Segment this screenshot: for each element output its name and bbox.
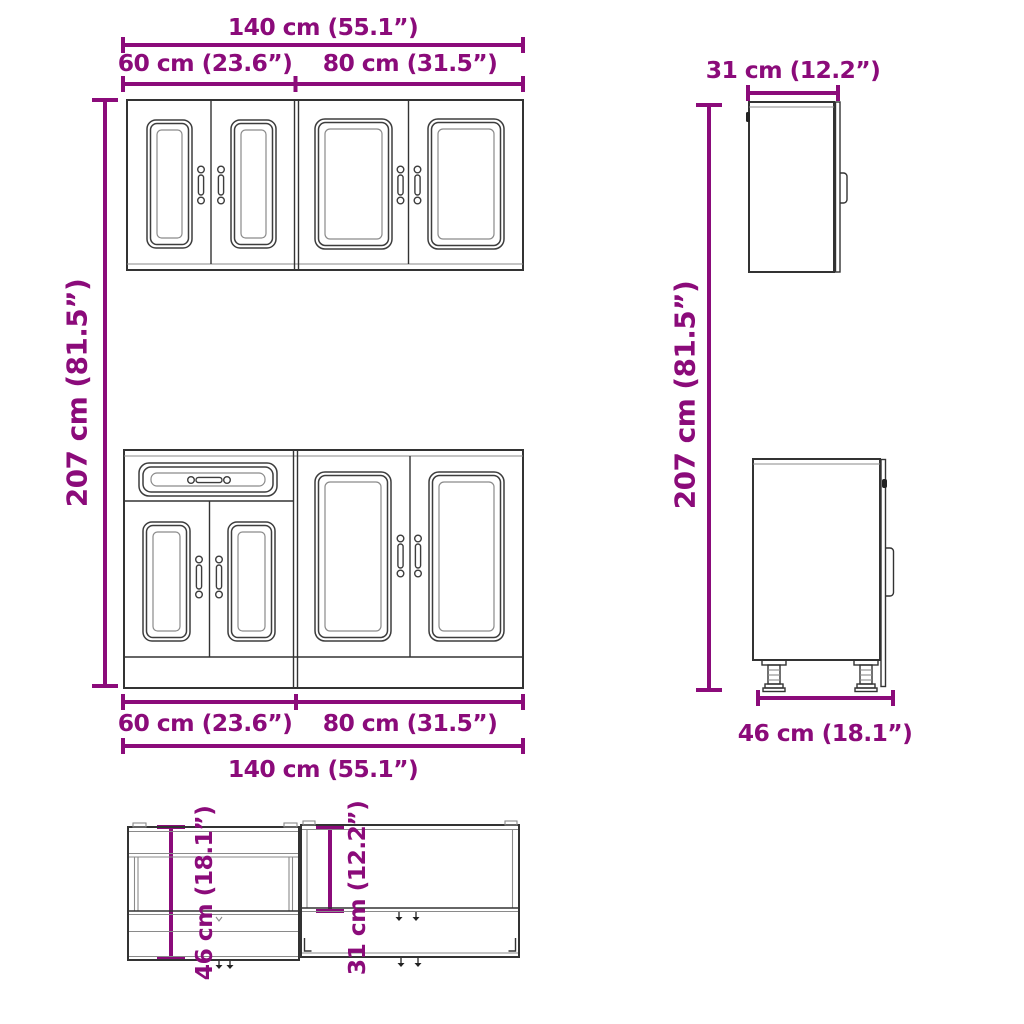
hinge-icon <box>746 112 750 122</box>
door-handle <box>414 166 421 204</box>
dim-label-total-width-top: 140 cm (55.1”) <box>228 13 418 41</box>
dim-label-height-left: 207 cm (81.5”) <box>61 279 94 507</box>
cabinet-leg <box>854 660 878 692</box>
wall-cabinet-top-view <box>301 821 519 967</box>
dim-line-topview-wall-depth <box>316 827 344 911</box>
dim-line-base-depth <box>758 690 893 706</box>
cabinet-door-panel <box>143 522 190 641</box>
door-handle <box>397 166 404 204</box>
dim-line-segment-widths-top <box>123 76 523 92</box>
drawer-handle <box>188 477 231 484</box>
dim-label-left-width-top: 60 cm (23.6”) <box>118 49 293 77</box>
door-handle <box>216 556 223 598</box>
dim-label-base-depth: 46 cm (18.1”) <box>738 719 913 747</box>
cabinet-door-panel <box>231 120 276 248</box>
cabinet-door-panel <box>315 119 392 249</box>
cabinet-door-panel <box>315 472 391 641</box>
cabinet-leg <box>762 660 786 692</box>
wall-cabinet-side-view <box>746 102 847 272</box>
dim-label-wall-depth: 31 cm (12.2”) <box>706 56 881 84</box>
cabinet-door-panel <box>428 119 504 249</box>
hinge-icon <box>882 479 887 488</box>
dim-line-wall-depth <box>748 85 838 101</box>
cabinet-door-panel <box>147 120 192 248</box>
base-cabinets-front-view <box>124 450 523 688</box>
dim-label-total-width-bottom: 140 cm (55.1”) <box>228 755 418 783</box>
cabinet-door-panel <box>228 522 275 641</box>
dim-label-right-width-bottom: 80 cm (31.5”) <box>323 709 498 737</box>
diagram-line-art <box>0 0 1024 1024</box>
door-handle <box>198 166 205 204</box>
wall-cabinets-front-view <box>127 100 523 270</box>
dim-line-topview-base-depth <box>157 827 185 959</box>
door-handle <box>415 535 422 577</box>
dim-line-height-left <box>92 100 118 686</box>
dim-label-topview-wall-depth: 31 cm (12.2”) <box>343 801 371 976</box>
door-handle <box>218 166 225 204</box>
dim-label-height-right: 207 cm (81.5”) <box>669 281 702 509</box>
cabinet-door-panel <box>429 472 504 641</box>
kitchen-cabinet-dimension-diagram: 140 cm (55.1”) 60 cm (23.6”) 80 cm (31.5… <box>0 0 1024 1024</box>
dim-label-left-width-bottom: 60 cm (23.6”) <box>118 709 293 737</box>
dim-label-topview-base-depth: 46 cm (18.1”) <box>190 806 218 981</box>
dim-line-segment-widths-bottom <box>123 694 523 710</box>
door-handle <box>196 556 203 598</box>
door-handle <box>397 535 404 577</box>
dim-line-total-width-bottom <box>123 738 523 754</box>
base-cabinet-side-view <box>753 459 894 692</box>
dim-label-right-width-top: 80 cm (31.5”) <box>323 49 498 77</box>
